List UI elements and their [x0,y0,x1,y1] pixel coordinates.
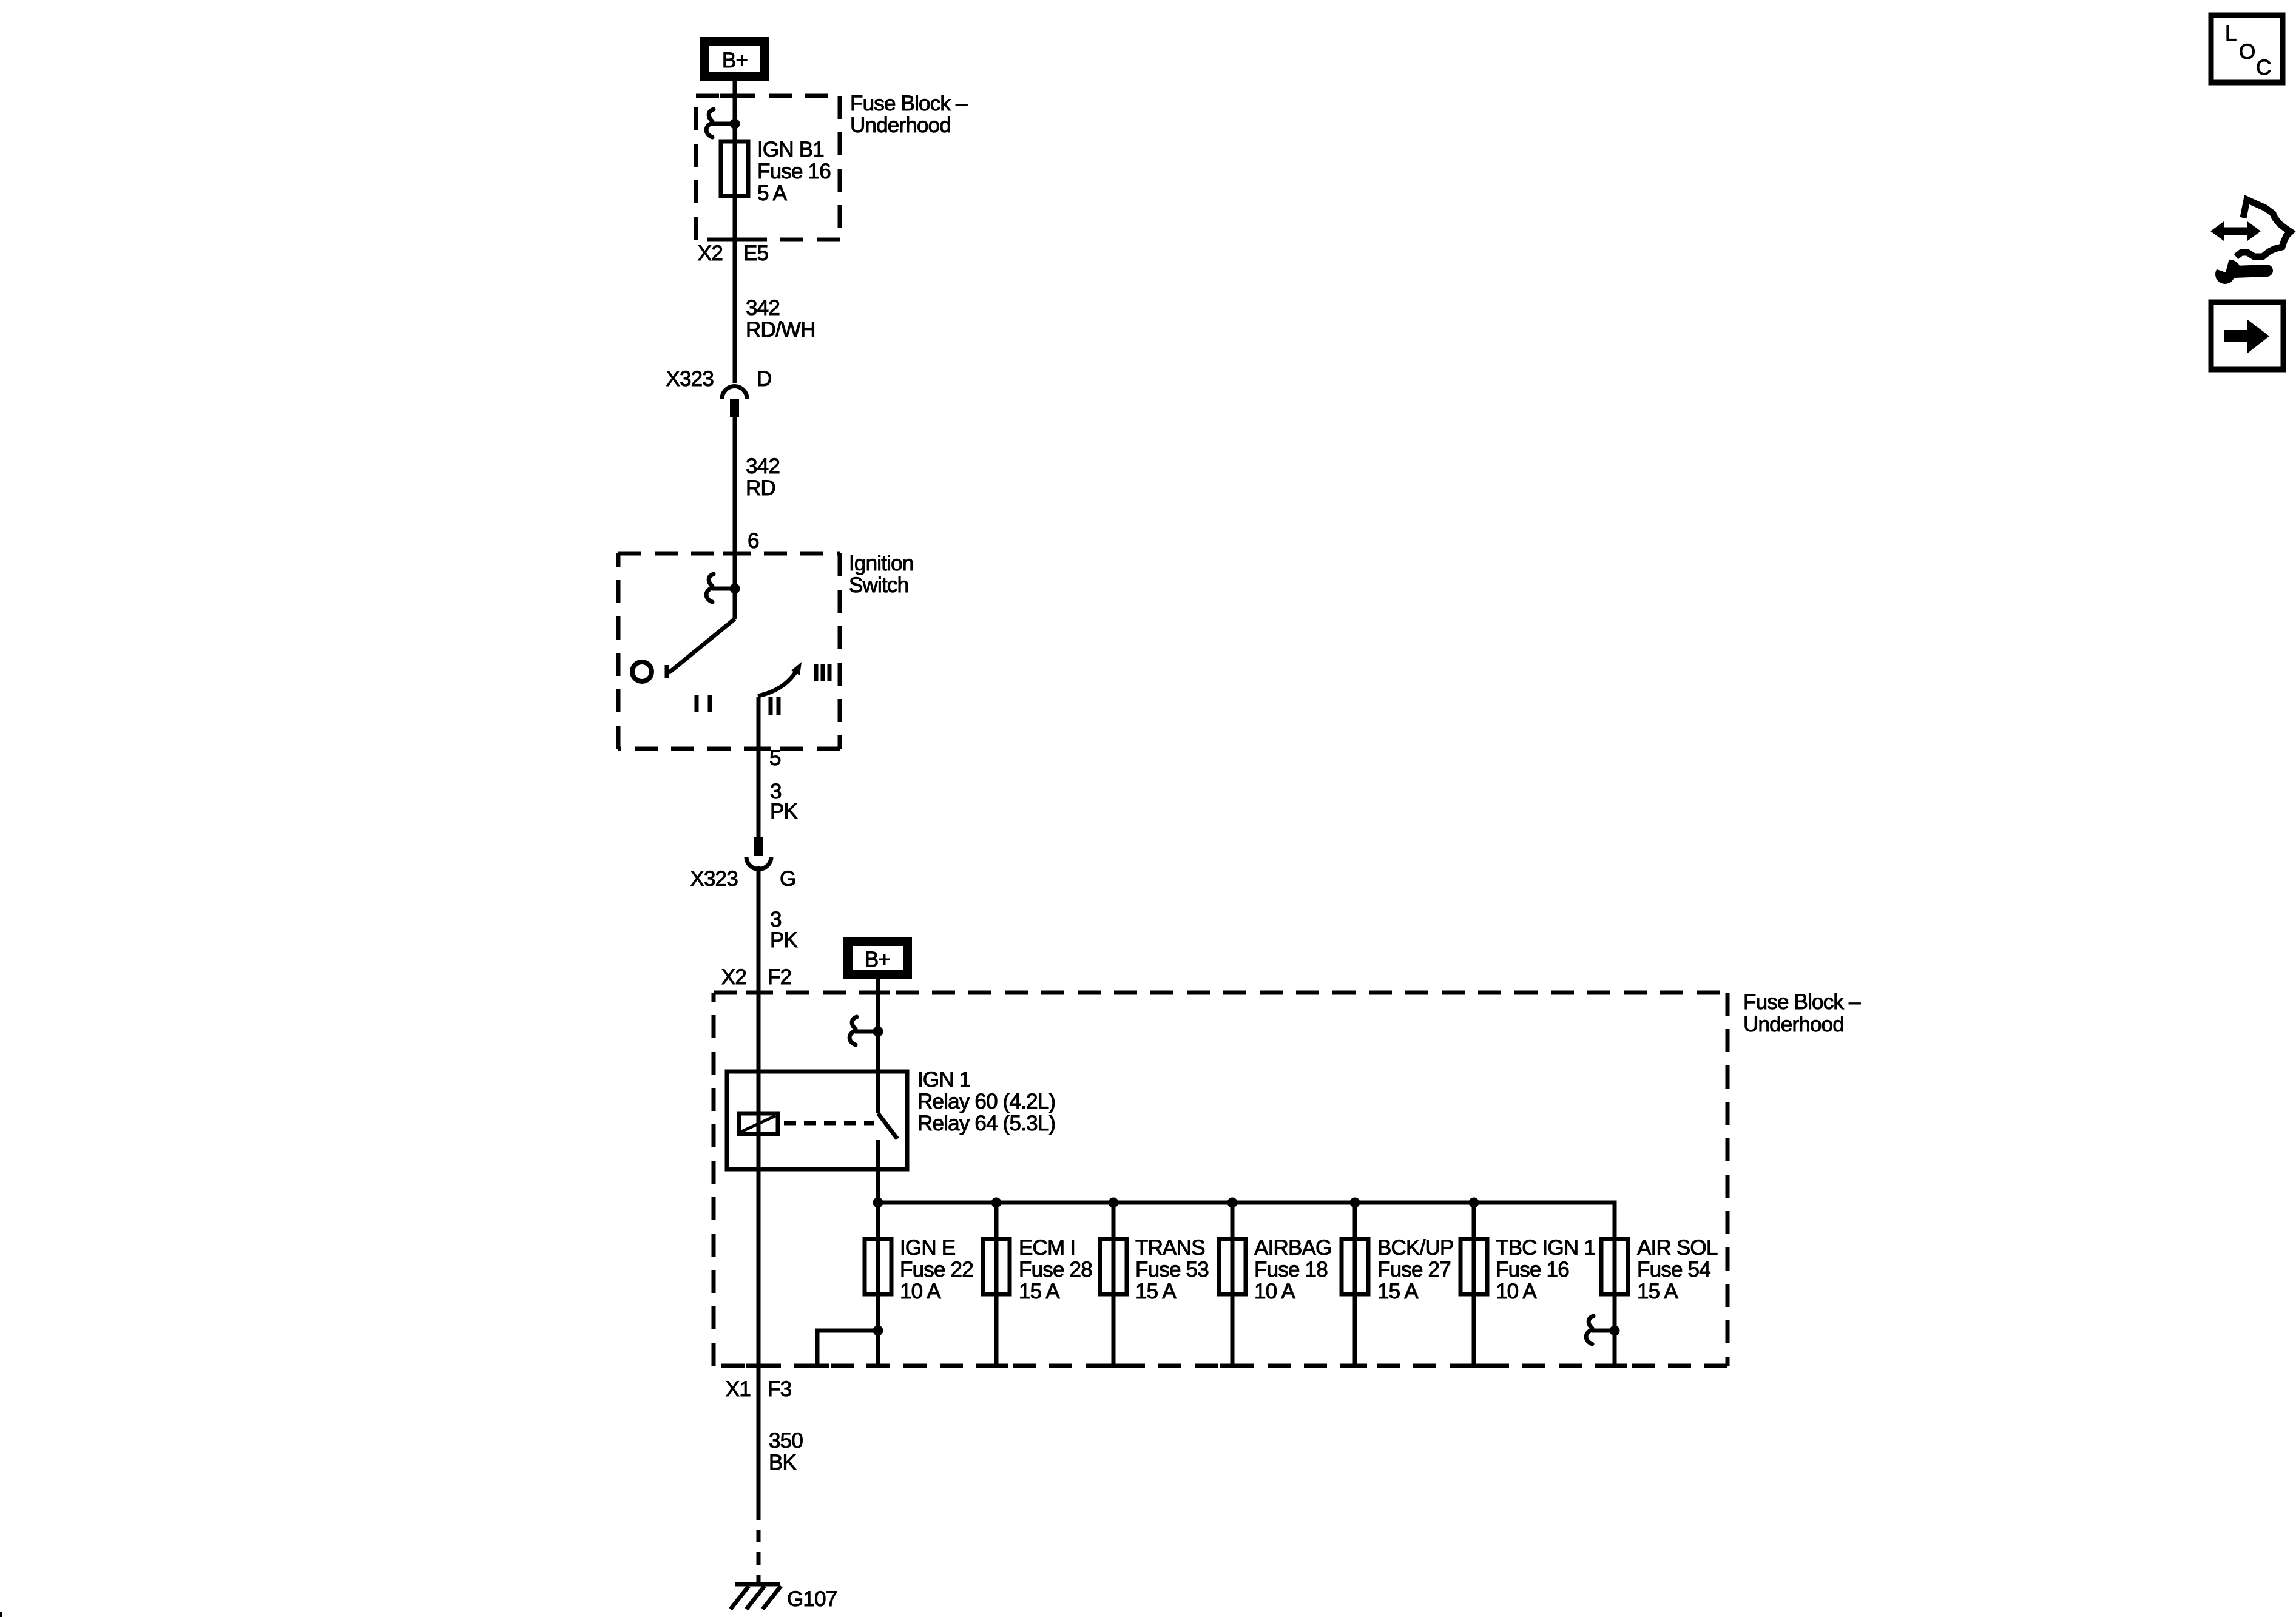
svg-text:RD/WH: RD/WH [746,318,815,342]
svg-text:10 A: 10 A [1254,1280,1295,1303]
svg-text:350: 350 [769,1429,803,1453]
svg-text:342: 342 [746,454,780,478]
svg-text:X2: X2 [698,241,723,265]
svg-text:G: G [780,867,795,891]
svg-text:Switch: Switch [849,573,908,597]
svg-text:15 A: 15 A [1135,1280,1177,1303]
svg-text:6: 6 [748,529,759,553]
svg-text:Fuse 54: Fuse 54 [1637,1258,1710,1281]
svg-text:15 A: 15 A [1637,1280,1678,1303]
svg-text:G107: G107 [787,1587,837,1611]
svg-text:X2: X2 [721,965,746,989]
svg-text:X323: X323 [666,367,714,391]
svg-text:Fuse Block –: Fuse Block – [1743,990,1861,1014]
svg-text:B+: B+ [865,948,890,971]
svg-text:5 A: 5 A [757,181,788,205]
svg-text:X323: X323 [690,867,738,891]
svg-text:TBC IGN 1: TBC IGN 1 [1496,1236,1595,1260]
svg-text:5: 5 [769,746,781,770]
svg-text:Relay 64 (5.3L): Relay 64 (5.3L) [917,1112,1055,1135]
svg-text:Fuse 22: Fuse 22 [900,1258,973,1281]
svg-text:D: D [757,367,771,391]
svg-text:AIR SOL: AIR SOL [1637,1236,1718,1260]
svg-text:IGN E: IGN E [900,1236,955,1260]
svg-text:F3: F3 [768,1377,791,1401]
svg-text:BCK/UP: BCK/UP [1377,1236,1454,1260]
svg-text:X1: X1 [726,1377,751,1401]
svg-text:F2: F2 [768,965,791,989]
svg-text:IGN 1: IGN 1 [917,1068,970,1092]
svg-text:PK: PK [770,928,798,952]
svg-text:L: L [2225,22,2237,46]
svg-text:Fuse 27: Fuse 27 [1377,1258,1451,1281]
svg-text:TRANS: TRANS [1135,1236,1205,1260]
svg-text:Relay 60 (4.2L): Relay 60 (4.2L) [917,1090,1055,1113]
svg-text:10 A: 10 A [1496,1280,1537,1303]
svg-text:Fuse 16: Fuse 16 [757,160,831,183]
svg-text:Fuse 16: Fuse 16 [1496,1258,1569,1281]
svg-text:Fuse Block –: Fuse Block – [850,92,968,115]
svg-text:Ignition: Ignition [849,552,913,575]
svg-text:PK: PK [770,800,798,823]
svg-text:Underhood: Underhood [850,113,951,137]
svg-text:10 A: 10 A [900,1280,941,1303]
svg-text:AIRBAG: AIRBAG [1254,1236,1331,1260]
svg-text:342: 342 [746,296,780,320]
svg-text:15 A: 15 A [1019,1280,1060,1303]
svg-text:Fuse 28: Fuse 28 [1019,1258,1092,1281]
svg-text:C: C [2256,56,2271,79]
svg-text:O: O [2239,40,2255,64]
svg-text:15 A: 15 A [1377,1280,1419,1303]
svg-text:ECM I: ECM I [1019,1236,1075,1260]
svg-text:IGN B1: IGN B1 [757,138,824,161]
svg-text:RD: RD [746,476,775,500]
svg-text:Fuse 18: Fuse 18 [1254,1258,1328,1281]
svg-text:Underhood: Underhood [1743,1013,1844,1036]
svg-text:B+: B+ [722,49,748,72]
svg-text:E5: E5 [743,241,768,265]
svg-text:Fuse 53: Fuse 53 [1135,1258,1209,1281]
svg-text:BK: BK [769,1451,797,1474]
